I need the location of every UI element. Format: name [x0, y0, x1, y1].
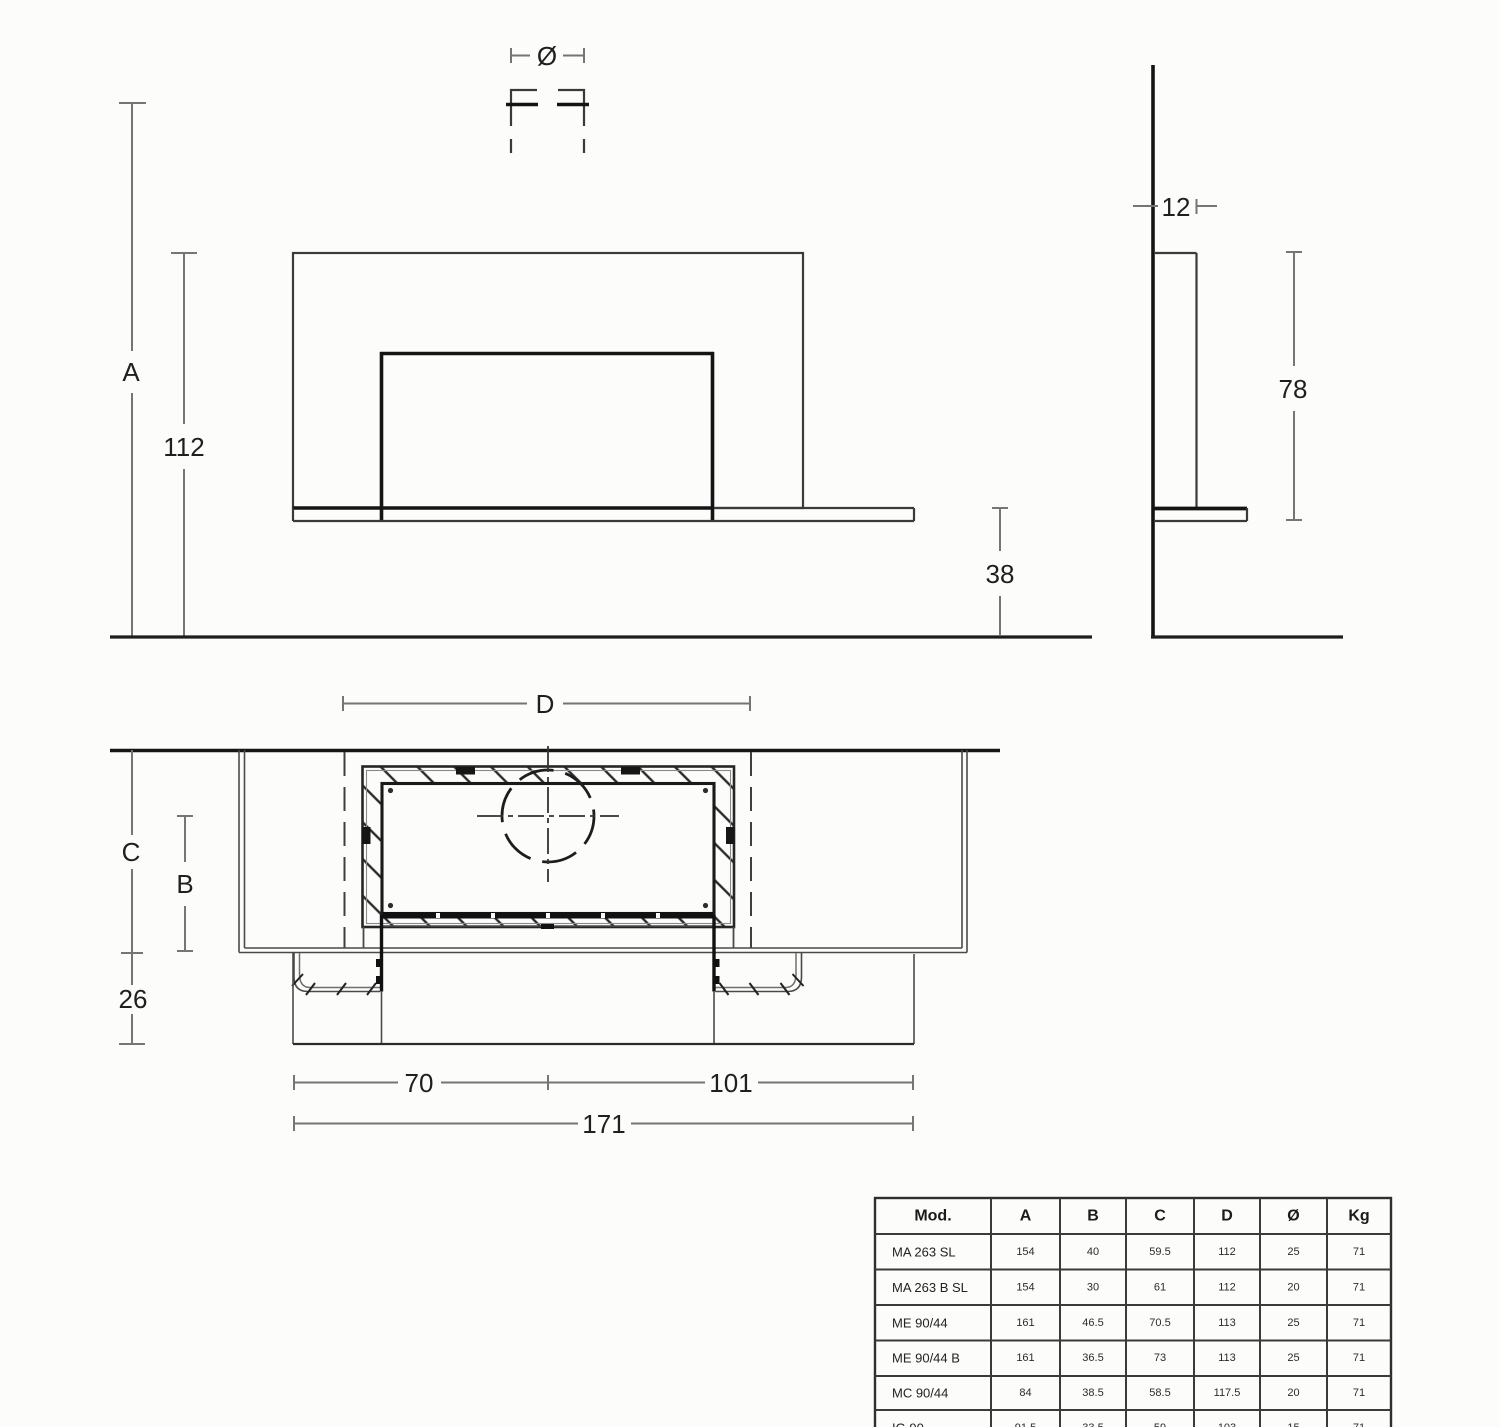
svg-text:25: 25: [1287, 1317, 1299, 1329]
svg-text:161: 161: [1016, 1352, 1034, 1364]
svg-text:B: B: [1087, 1208, 1099, 1225]
svg-text:161: 161: [1016, 1317, 1034, 1329]
svg-text:117.5: 117.5: [1214, 1387, 1241, 1399]
svg-text:59: 59: [1154, 1422, 1166, 1427]
svg-text:46.5: 46.5: [1082, 1317, 1103, 1329]
svg-text:C: C: [122, 837, 141, 867]
svg-text:113: 113: [1218, 1352, 1236, 1364]
svg-text:113: 113: [1218, 1317, 1236, 1329]
svg-text:71: 71: [1353, 1246, 1365, 1258]
svg-text:70.5: 70.5: [1149, 1317, 1170, 1329]
svg-text:70: 70: [405, 1068, 434, 1098]
svg-text:71: 71: [1353, 1387, 1365, 1399]
svg-text:71: 71: [1353, 1317, 1365, 1329]
svg-text:MC 90/44: MC 90/44: [892, 1386, 948, 1401]
svg-text:71: 71: [1353, 1282, 1365, 1294]
svg-text:25: 25: [1287, 1352, 1299, 1364]
svg-text:ME 90/44: ME 90/44: [892, 1316, 948, 1331]
svg-text:12: 12: [1162, 192, 1191, 222]
svg-text:20: 20: [1287, 1387, 1299, 1399]
svg-text:Kg: Kg: [1348, 1208, 1369, 1225]
svg-text:58.5: 58.5: [1149, 1387, 1170, 1399]
svg-text:B: B: [176, 869, 193, 899]
svg-text:91.5: 91.5: [1015, 1422, 1036, 1427]
svg-text:171: 171: [582, 1109, 625, 1139]
svg-text:C: C: [1154, 1208, 1166, 1225]
svg-text:84: 84: [1019, 1387, 1031, 1399]
svg-text:112: 112: [163, 432, 204, 462]
svg-text:154: 154: [1016, 1282, 1034, 1294]
svg-text:154: 154: [1016, 1246, 1034, 1258]
svg-text:ME 90/44 B: ME 90/44 B: [892, 1351, 960, 1366]
svg-text:15: 15: [1287, 1422, 1299, 1427]
svg-text:33.5: 33.5: [1082, 1422, 1103, 1427]
svg-text:MA 263 B SL: MA 263 B SL: [892, 1280, 968, 1295]
svg-text:59.5: 59.5: [1149, 1246, 1170, 1258]
svg-text:D: D: [1221, 1208, 1233, 1225]
svg-text:78: 78: [1279, 374, 1308, 404]
svg-text:101: 101: [709, 1068, 752, 1098]
svg-text:A: A: [1020, 1208, 1032, 1225]
svg-text:25: 25: [1287, 1246, 1299, 1258]
svg-text:61: 61: [1154, 1282, 1166, 1294]
svg-text:Ø: Ø: [537, 41, 557, 71]
svg-text:71: 71: [1353, 1422, 1365, 1427]
svg-text:71: 71: [1353, 1352, 1365, 1364]
svg-text:20: 20: [1287, 1282, 1299, 1294]
svg-text:30: 30: [1087, 1282, 1099, 1294]
svg-text:MA 263 SL: MA 263 SL: [892, 1245, 956, 1260]
svg-text:112: 112: [1218, 1282, 1236, 1294]
svg-text:73: 73: [1154, 1352, 1166, 1364]
svg-text:40: 40: [1087, 1246, 1099, 1258]
svg-text:38: 38: [986, 559, 1015, 589]
svg-text:IG 90: IG 90: [892, 1421, 924, 1427]
svg-text:A: A: [122, 357, 140, 387]
svg-text:36.5: 36.5: [1082, 1352, 1103, 1364]
svg-text:Mod.: Mod.: [914, 1208, 951, 1225]
svg-text:Ø: Ø: [1287, 1208, 1299, 1225]
svg-text:112: 112: [1218, 1246, 1236, 1258]
svg-text:D: D: [536, 689, 555, 719]
svg-text:38.5: 38.5: [1082, 1387, 1103, 1399]
svg-text:103: 103: [1218, 1422, 1236, 1427]
svg-text:26: 26: [119, 984, 148, 1014]
